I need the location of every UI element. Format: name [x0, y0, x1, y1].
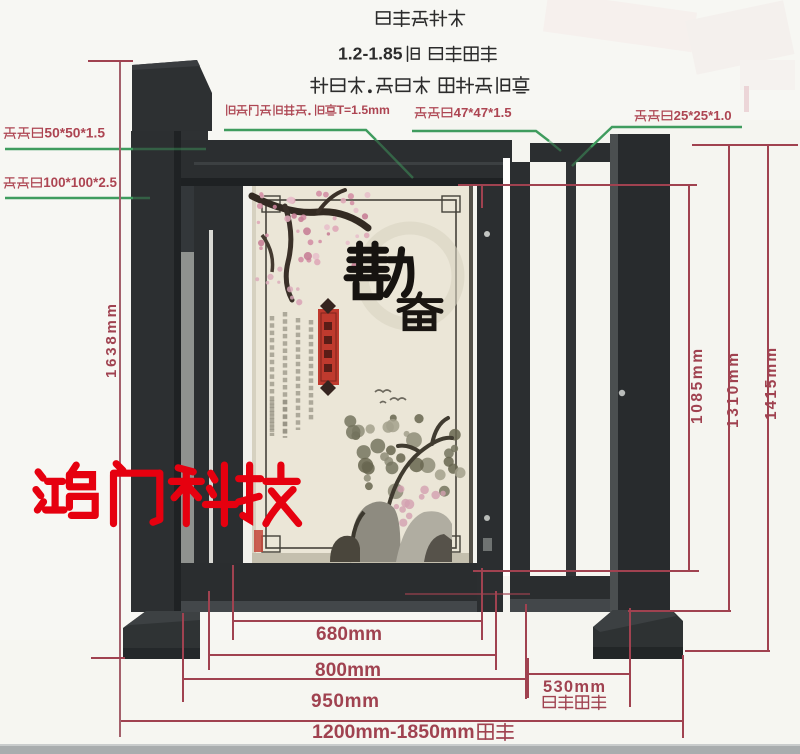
svg-text:680mm: 680mm: [316, 624, 382, 645]
svg-text:1415mm: 1415mm: [763, 348, 780, 420]
svg-text:47*47*1.5: 47*47*1.5: [454, 105, 512, 120]
svg-text:25*25*1.0: 25*25*1.0: [674, 108, 732, 123]
svg-text:800mm: 800mm: [315, 660, 381, 681]
svg-text:950mm: 950mm: [311, 691, 379, 712]
svg-text:1310mm: 1310mm: [725, 353, 742, 428]
svg-text:50*50*1.5: 50*50*1.5: [44, 125, 105, 140]
svg-text:T=1.5mm: T=1.5mm: [337, 103, 390, 117]
svg-text:1200mm-1850mm: 1200mm-1850mm: [312, 721, 475, 743]
svg-text:1.2-1.85: 1.2-1.85: [338, 43, 403, 63]
svg-text:100*100*2.5: 100*100*2.5: [43, 175, 117, 190]
svg-text:1085mm: 1085mm: [689, 349, 706, 424]
svg-text:1638mm: 1638mm: [103, 304, 120, 378]
